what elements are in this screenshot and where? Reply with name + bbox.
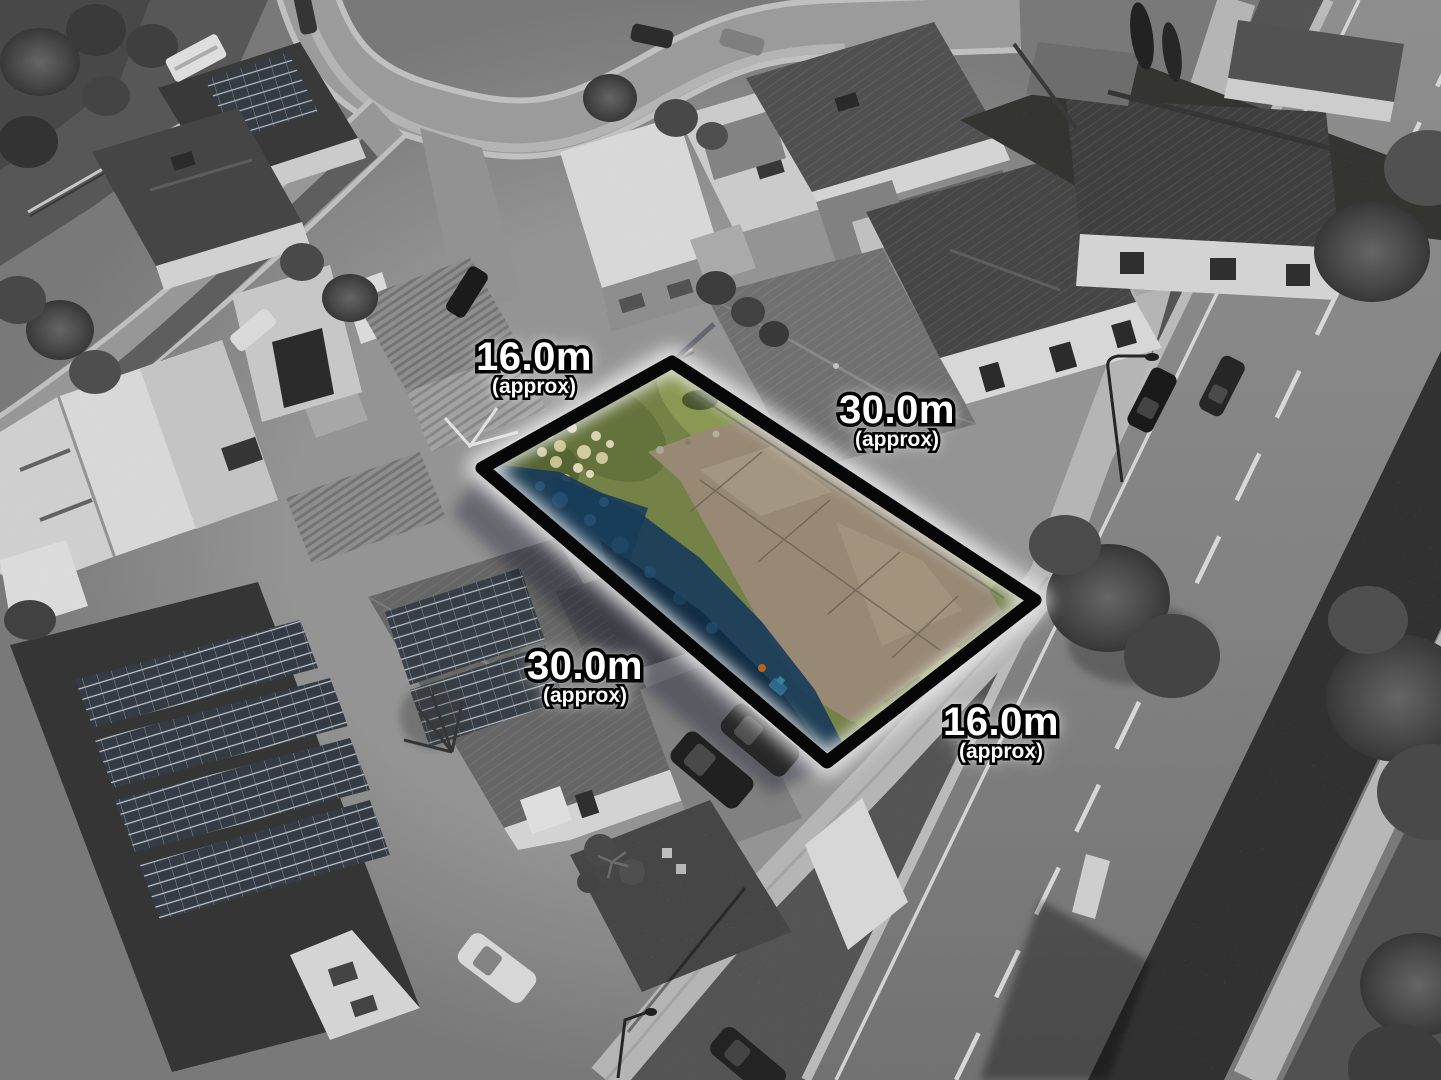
dimension-qualifier: (approx)(approx) — [943, 741, 1059, 762]
aerial-lot-photo: 16.0m16.0m (approx)(approx) 30.0m30.0m (… — [0, 0, 1441, 1080]
dimension-label-depth-left: 30.0m30.0m (approx)(approx) — [527, 646, 643, 706]
dimension-value: 30.0m30.0m — [839, 390, 955, 430]
grain-overlay — [0, 0, 1441, 1080]
aerial-scene — [0, 0, 1441, 1080]
dimension-value: 16.0m16.0m — [943, 702, 1059, 742]
dimension-qualifier: (approx)(approx) — [839, 429, 955, 450]
dimension-value: 16.0m16.0m — [476, 337, 592, 377]
dimension-label-depth-right: 30.0m30.0m (approx)(approx) — [839, 390, 955, 450]
dimension-label-frontage-bottom: 16.0m16.0m (approx)(approx) — [943, 702, 1059, 762]
dimension-label-frontage-top: 16.0m16.0m (approx)(approx) — [476, 337, 592, 397]
dimension-qualifier: (approx)(approx) — [476, 376, 592, 397]
dimension-qualifier: (approx)(approx) — [527, 685, 643, 706]
dimension-value: 30.0m30.0m — [527, 646, 643, 686]
